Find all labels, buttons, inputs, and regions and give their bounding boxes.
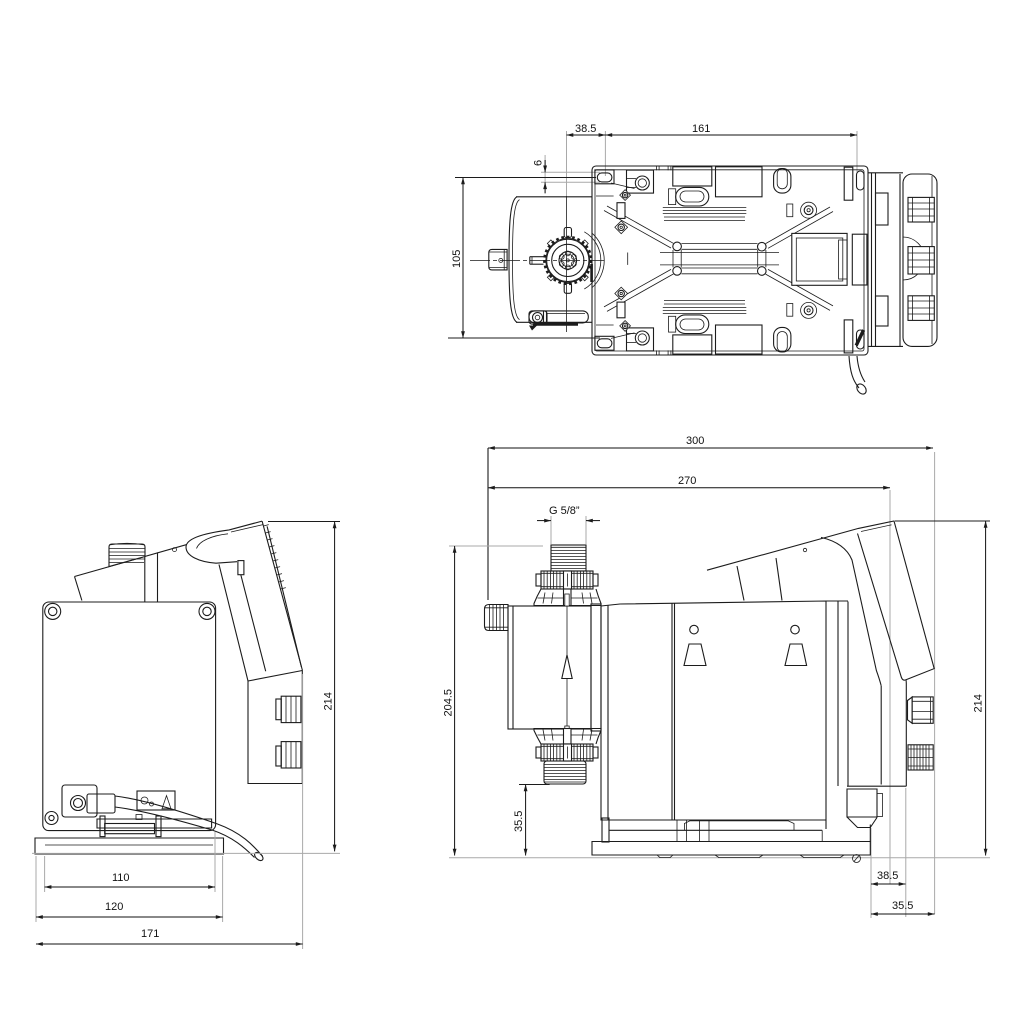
svg-text:G 5/8”: G 5/8” xyxy=(549,505,580,517)
svg-text:105: 105 xyxy=(451,250,463,268)
svg-text:38.5: 38.5 xyxy=(877,870,898,882)
svg-text:120: 120 xyxy=(105,901,123,913)
svg-text:171: 171 xyxy=(141,928,159,940)
svg-text:300: 300 xyxy=(686,435,704,447)
svg-text:214: 214 xyxy=(323,692,335,710)
svg-text:270: 270 xyxy=(678,475,696,487)
svg-text:38.5: 38.5 xyxy=(575,123,596,135)
svg-text:161: 161 xyxy=(692,123,710,135)
svg-text:110: 110 xyxy=(112,872,130,884)
svg-text:214: 214 xyxy=(973,694,985,712)
svg-text:35.5: 35.5 xyxy=(892,900,913,912)
svg-text:35.5: 35.5 xyxy=(513,811,525,832)
svg-text:204.5: 204.5 xyxy=(443,689,455,717)
svg-text:6: 6 xyxy=(533,160,545,166)
